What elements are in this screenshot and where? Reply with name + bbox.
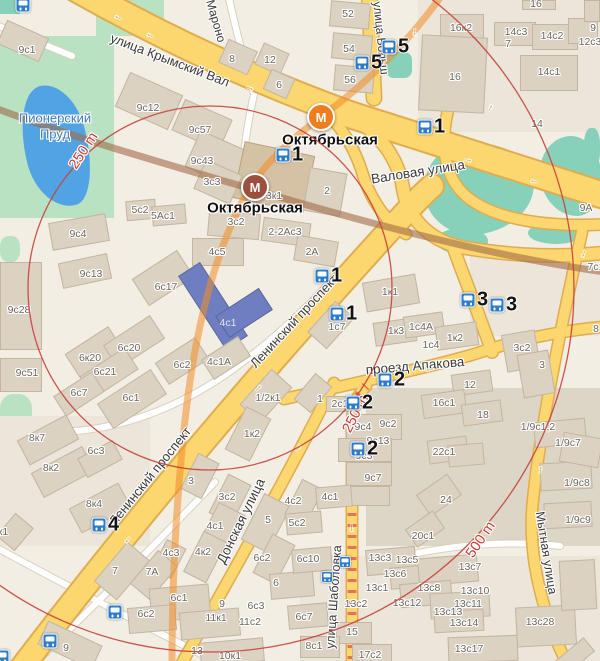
- transit-stop-icon[interactable]: [418, 120, 433, 135]
- transit-stop-icon[interactable]: [0, 650, 10, 661]
- transit-stop-number: 5: [371, 52, 382, 75]
- transit-stop-number: 1: [331, 265, 342, 288]
- transit-stop-icon[interactable]: [92, 518, 107, 533]
- transit-stop-number: 3: [506, 294, 517, 317]
- transit-stop-icon[interactable]: [330, 307, 345, 322]
- transit-stop-number: 2: [394, 369, 405, 392]
- metro-station-icon[interactable]: М: [307, 103, 335, 131]
- transit-stop-icon[interactable]: [490, 298, 505, 313]
- transit-stop-icon[interactable]: [378, 373, 393, 388]
- transit-stop-number: 1: [292, 144, 303, 167]
- transit-stop-number: 1: [346, 303, 357, 326]
- transit-stop-number: 4: [108, 514, 119, 537]
- icons-layer: ММ551111332224: [0, 0, 600, 661]
- transit-stop-icon[interactable]: [461, 293, 476, 308]
- transit-stop-number: 5: [398, 36, 409, 59]
- transit-stop-icon[interactable]: [108, 605, 123, 620]
- transit-stop-number: 3: [477, 289, 488, 312]
- transit-stop-icon[interactable]: [276, 148, 291, 163]
- transit-stop-number: 1: [434, 116, 445, 139]
- metro-station-icon[interactable]: М: [241, 173, 269, 201]
- transit-stop-icon[interactable]: [339, 556, 351, 568]
- transit-stop-icon[interactable]: [351, 442, 366, 457]
- transit-stop-icon[interactable]: [321, 571, 333, 583]
- transit-stop-icon[interactable]: [355, 56, 370, 71]
- transit-stop-number: 2: [367, 438, 378, 461]
- transit-stop-icon[interactable]: [315, 269, 330, 284]
- map-canvas[interactable]: 9с1812652545616к21614с3714с212с391614с11…: [0, 0, 600, 661]
- transit-stop-icon[interactable]: [43, 634, 58, 649]
- transit-stop-icon[interactable]: [16, 0, 31, 13]
- transit-stop-icon[interactable]: [382, 40, 397, 55]
- transit-stop-icon[interactable]: [346, 396, 361, 411]
- transit-stop-number: 2: [362, 392, 373, 415]
